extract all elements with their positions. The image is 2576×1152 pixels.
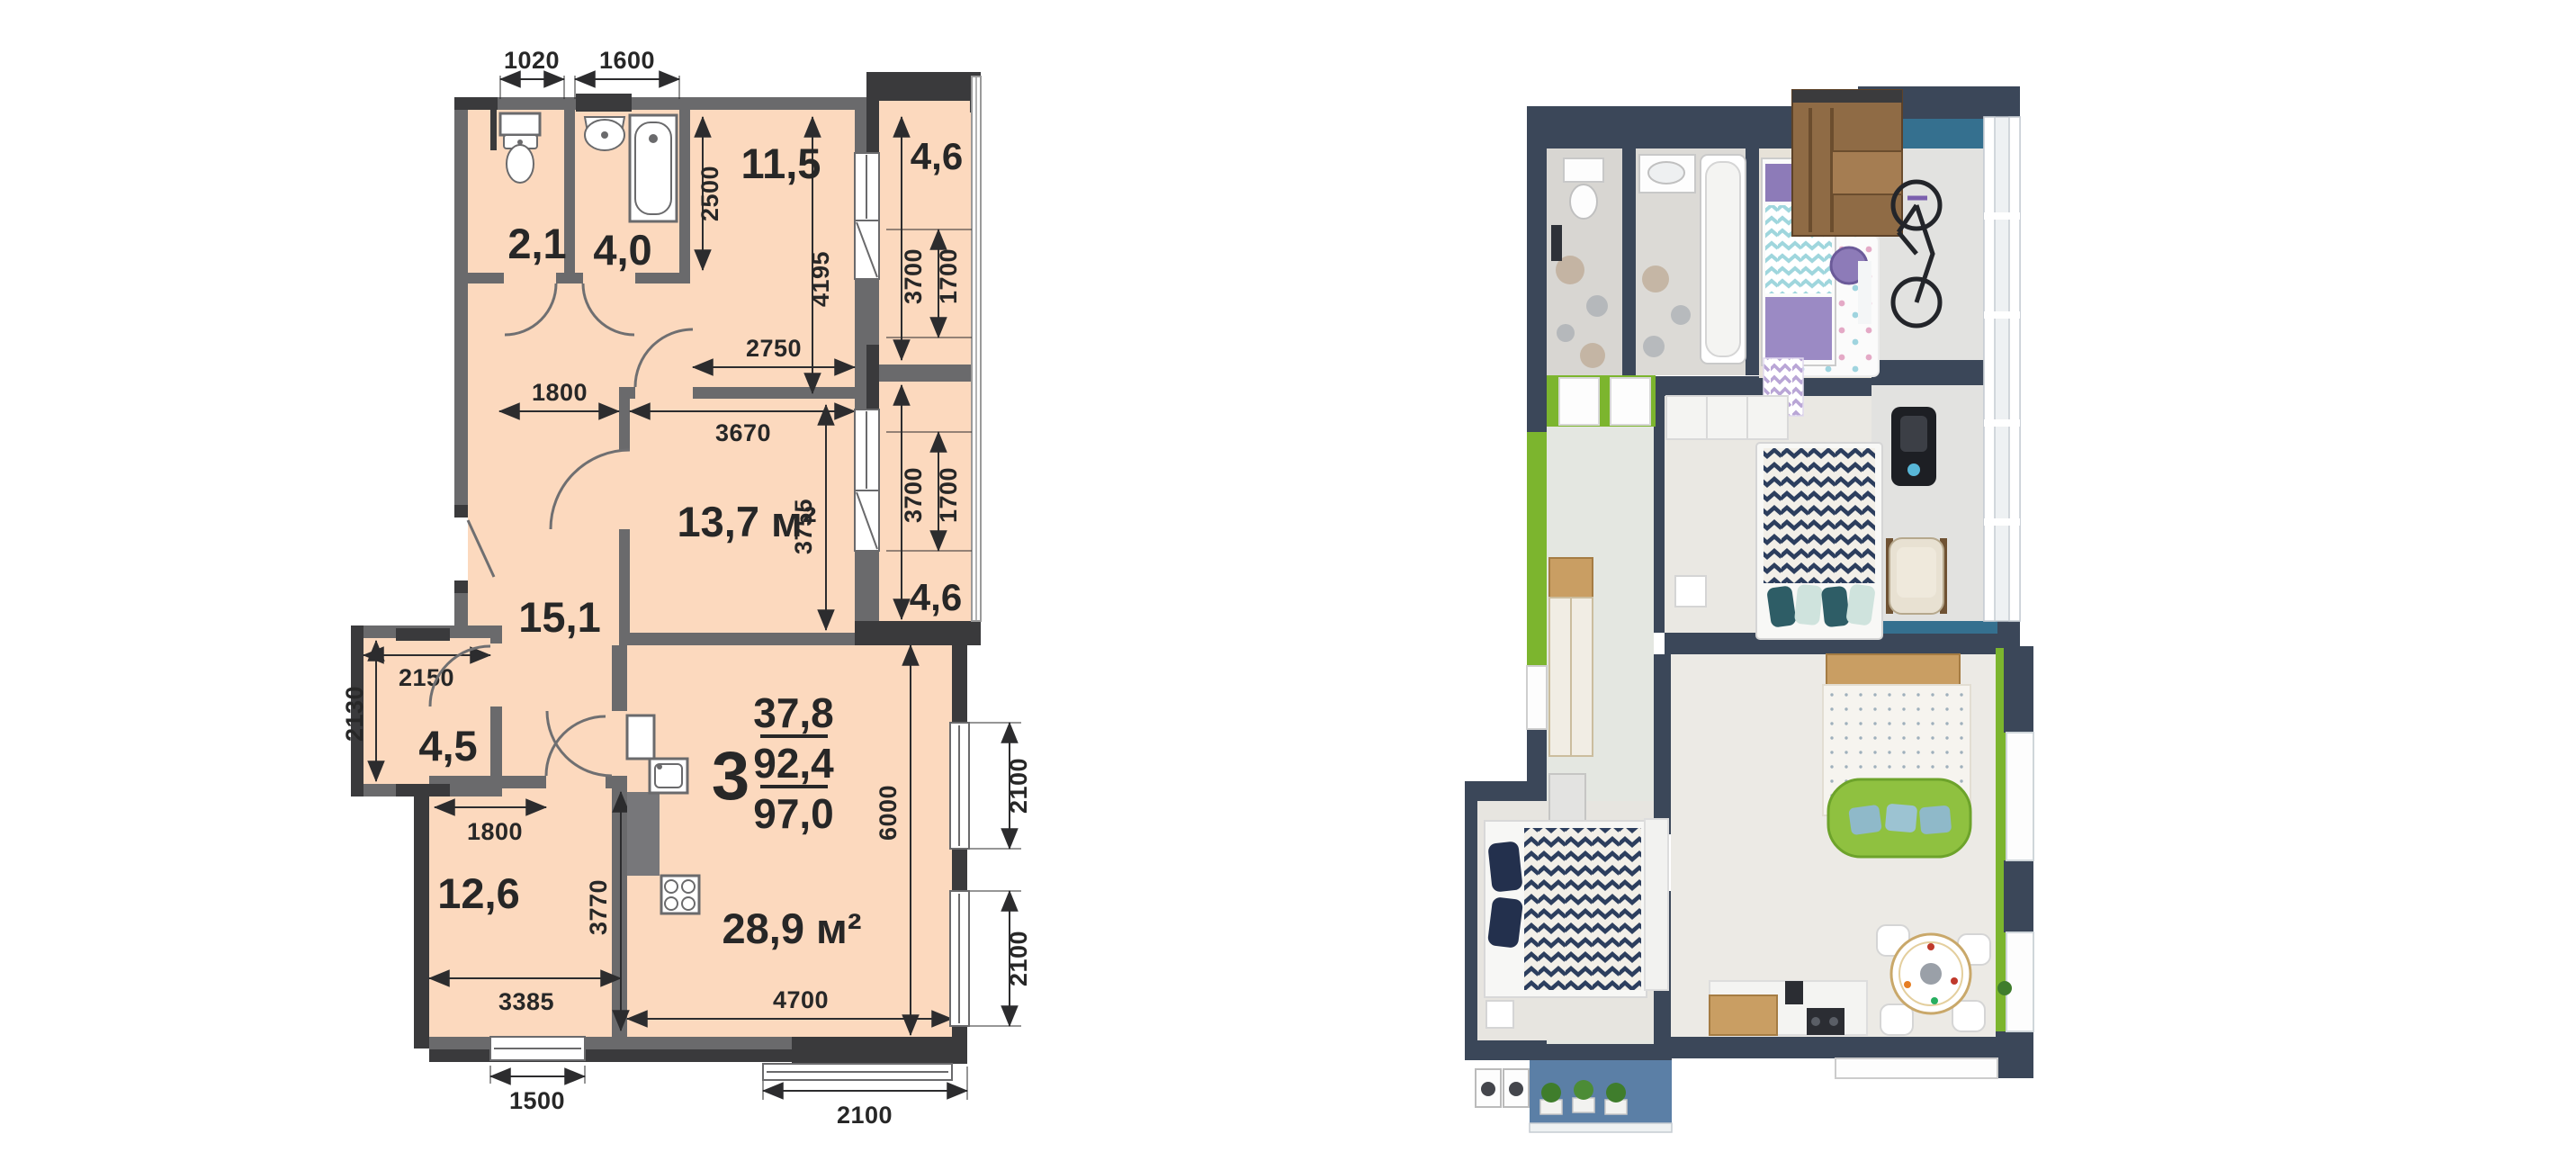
living-window-lower-3d (2006, 932, 2033, 1031)
summary-living-area: 37,8 (753, 689, 834, 736)
room-balcony-top-label: 4,6 (911, 135, 963, 177)
room-balcony-middle-label: 4,6 (910, 576, 962, 618)
dim-bathroom-width: 1600 (599, 47, 655, 74)
dim-bedroom-top-width: 2750 (746, 335, 802, 362)
plants (1540, 1080, 1627, 1114)
dim-bedroom-bottom-window: 1500 (509, 1087, 565, 1114)
dim-bedroom-top-depth: 2500 (696, 166, 723, 221)
exercise-machine (1891, 407, 1936, 486)
room-hallway-label: 15,1 (518, 593, 600, 641)
dim-storage-width: 2150 (399, 664, 454, 691)
dim-living-window-right-upper: 2100 (1005, 758, 1032, 814)
living-bottom-window-3d (1836, 1058, 1997, 1078)
bedroom-middle-balcony-door (855, 409, 879, 551)
shelf-wood (1827, 654, 1960, 685)
room-living-label: 28,9 м² (723, 904, 862, 952)
room-storage-label: 4,5 (418, 722, 477, 769)
dim-living-window-bottom: 2100 (837, 1102, 893, 1129)
dim-bedroom-top-height: 4195 (807, 251, 834, 307)
page-canvas: 1020 1600 2500 4195 2750 1800 3670 3755 … (0, 0, 2576, 1152)
nightstand (1675, 576, 1706, 607)
dim-balcony-top-window: 1700 (935, 248, 962, 304)
summary-rooms-count: 3 (712, 738, 749, 814)
living-right-window-upper (950, 723, 969, 849)
render-glazing-right (1984, 117, 2020, 621)
hall-bench (1549, 774, 1585, 824)
bedroom2-wardrobe (1645, 819, 1668, 990)
entry-door (1527, 666, 1547, 729)
summary-apartment-area: 92,4 (753, 740, 834, 787)
dim-balcony-top-length: 3700 (900, 248, 927, 304)
summary-total-area: 97,0 (753, 790, 834, 837)
room-wc-label: 2,1 (507, 220, 566, 267)
dim-hallway-width: 1800 (532, 379, 588, 406)
dim-kitchen-door: 1800 (467, 818, 523, 845)
wc-door (1559, 378, 1599, 425)
bedroom2-nightstand (1486, 1001, 1513, 1028)
balcony-glazing (972, 76, 981, 621)
master-wardrobe (1666, 396, 1788, 439)
bedroom2-furniture (1485, 819, 1668, 1028)
room-bedroom-bottom-label: 12,6 (437, 869, 519, 917)
plant-small (1997, 981, 2012, 995)
dim-balcony-middle-length: 3700 (900, 467, 927, 523)
room-bathroom-label: 4,0 (593, 226, 651, 274)
dim-bedroom-bottom-height: 3770 (585, 879, 612, 935)
green-wall-left (1527, 432, 1547, 666)
dim-wc-width: 1020 (504, 47, 560, 74)
dim-living-height: 6000 (875, 785, 902, 841)
living-bottom-window (763, 1064, 952, 1080)
dim-bedroom-middle-width: 3670 (715, 419, 771, 446)
kitchen-window (490, 1037, 585, 1060)
bath-door (1611, 378, 1650, 425)
kitchen-counter (1710, 981, 1867, 1035)
dim-living-window-right-lower: 2100 (1005, 931, 1032, 986)
dim-balcony-middle-window: 1700 (935, 467, 962, 523)
armchair (1886, 538, 1947, 614)
living-right-window-lower (950, 891, 969, 1026)
hall-cabinet-wood (1549, 558, 1593, 598)
living-window-upper-3d (2006, 733, 2033, 860)
room-bedroom-middle-label: 13,7 м² (678, 498, 817, 545)
dim-living-width: 4700 (773, 986, 829, 1013)
floor-plan-3d (1465, 86, 2033, 1132)
floor-plan-2d: 1020 1600 2500 4195 2750 1800 3670 3755 … (341, 47, 1032, 1129)
dim-bedroom-bottom-width: 3385 (498, 988, 554, 1015)
kids-balcony-door (1858, 261, 1871, 324)
dim-storage-height: 2130 (341, 686, 368, 742)
balcony-railing (1530, 1123, 1672, 1132)
bedroom-top-balcony-door (855, 153, 879, 279)
room-bedroom-top-label: 11,5 (741, 139, 821, 187)
